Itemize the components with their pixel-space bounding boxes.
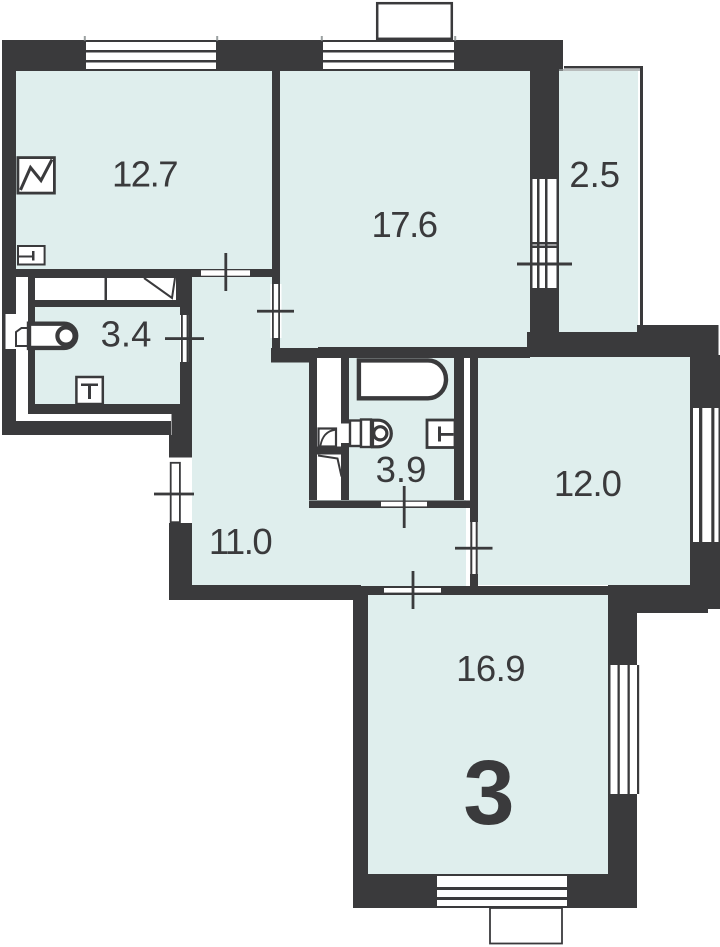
svg-text:3.9: 3.9 (376, 449, 427, 490)
svg-text:3: 3 (463, 742, 514, 844)
svg-text:11.0: 11.0 (209, 521, 272, 562)
svg-text:2.5: 2.5 (569, 154, 620, 195)
svg-text:12.0: 12.0 (554, 463, 621, 504)
svg-text:16.9: 16.9 (456, 648, 525, 689)
svg-text:3.4: 3.4 (101, 313, 152, 354)
svg-text:17.6: 17.6 (371, 204, 436, 245)
svg-text:12.7: 12.7 (112, 153, 177, 194)
